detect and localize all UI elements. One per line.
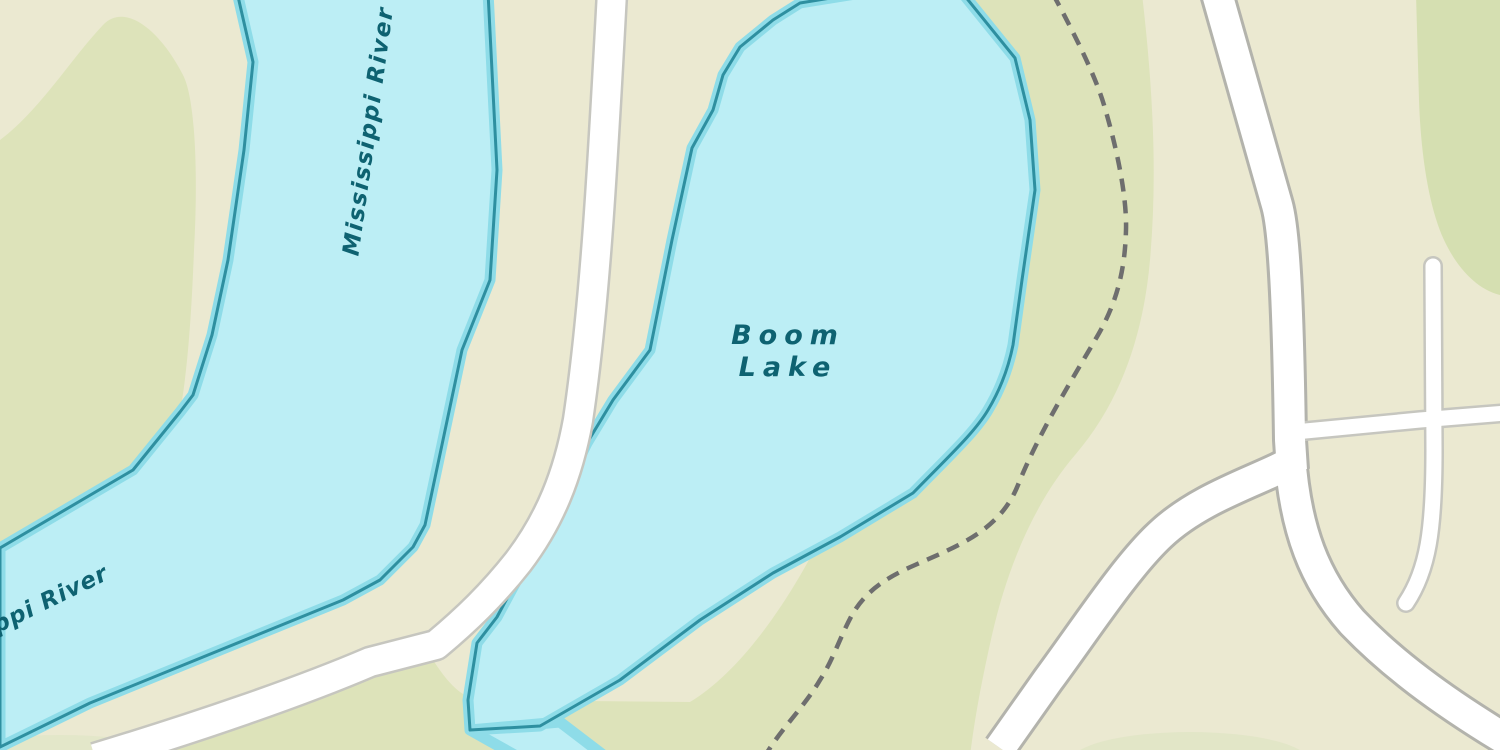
map-canvas[interactable]: Boom Lake Mississippi River Mississippi …: [0, 0, 1500, 750]
map-svg: [0, 0, 1500, 750]
